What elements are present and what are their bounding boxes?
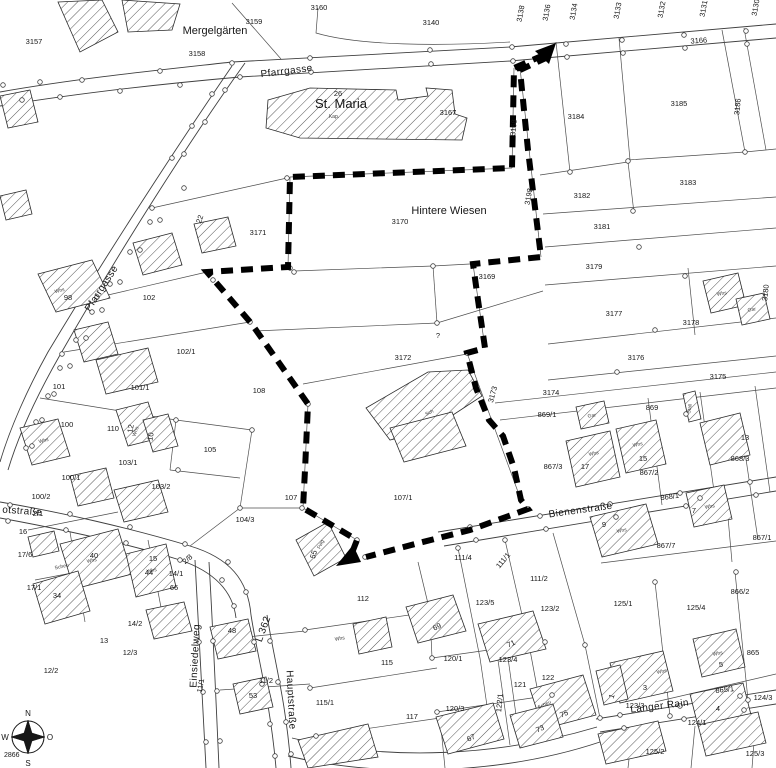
survey-point [128,250,133,255]
parcel-label: 3136 [541,4,553,22]
parcel-label: 3134 [568,3,580,21]
survey-point [744,29,749,34]
parcel-label: 3138 [515,5,527,23]
survey-point [598,716,603,721]
compass-rose: N O S W 2866 [1,709,53,768]
parcel-label: 3182 [574,191,591,200]
survey-point [743,150,748,155]
survey-point [138,248,143,253]
parcel-label: 2/1 [33,509,43,518]
parcel-label: 108 [253,386,266,395]
parcel-label: 115 [381,658,393,667]
survey-point [618,713,623,718]
building-label: Scheu [54,563,69,572]
parcel-label: 123/5 [476,598,495,607]
survey-point [250,428,255,433]
house-number: 48 [228,626,236,635]
cadastral-map: MergelgärtenHintere WiesenSt. MariaKap.P… [0,0,776,768]
survey-point [456,546,461,551]
parcel-label: 107/1 [394,493,413,502]
survey-point [637,245,642,250]
survey-point [653,580,658,585]
survey-point [203,120,208,125]
survey-point [614,515,619,520]
parcel-label: 111/2 [530,574,548,583]
survey-point [538,514,543,519]
survey-point [128,525,133,530]
chapel-label: Kap. [329,114,339,120]
survey-point [52,392,57,397]
survey-point [80,78,85,83]
house-number: 17 [581,462,589,471]
survey-point [230,61,235,66]
parcel-label: 866/2 [731,587,750,596]
survey-point [268,639,273,644]
survey-point [511,59,516,64]
parcel-label: 123/4 [499,655,518,664]
survey-point [46,394,51,399]
survey-point [620,38,625,43]
survey-point [30,444,35,449]
parcel-label: 3158 [189,49,206,58]
survey-point [1,83,6,88]
survey-point [176,468,181,473]
parcel-label: 121 [514,680,527,689]
house-number: 7 [692,506,696,515]
parcel-label: 3185 [671,99,688,108]
parcel-label: 868/3 [731,454,750,463]
parcel-label: 101/1 [131,383,150,392]
parcel-label: 124/3 [754,693,773,702]
parcel-label: 117 [406,712,418,721]
survey-point [503,538,508,543]
survey-point [682,717,687,722]
buildings [0,0,770,768]
parcel-label: 3174 [543,388,560,397]
parcel-label: 3184 [568,112,585,121]
parcel-label: 3173 [486,385,499,403]
parcel-label: 3140 [423,18,440,27]
parcel-label: 865 [747,648,760,657]
house-number: 53 [249,691,257,700]
parcel-label: 3159 [246,17,263,26]
parcel-label: 869/1 [538,410,557,419]
compass-east: O [47,733,53,742]
parcel-label: ? [436,331,440,340]
parcel-label: 123/2 [541,604,560,613]
survey-point [40,418,45,423]
survey-point [684,504,689,509]
compass-south: S [25,759,30,768]
survey-point [24,446,29,451]
parcel-label: 16 [19,527,27,536]
parcel-label: 12/3 [123,648,138,657]
sheet-number: 2866 [4,752,20,759]
parcel-label: 3172 [395,353,412,362]
parcel-label: 3186 [732,98,743,116]
parcel-label: 869 [646,403,659,412]
house-number: 15 [149,554,157,563]
survey-point [565,55,570,60]
parcel-label: 112 [357,594,369,603]
survey-point [314,734,319,739]
parcel-label: 3157 [26,37,43,46]
survey-point [289,752,294,757]
parcel-label: 867/2 [640,468,659,477]
survey-point [100,308,105,313]
survey-point [268,722,273,727]
survey-point [626,159,631,164]
survey-point [118,280,123,285]
survey-point [182,186,187,191]
survey-point [68,364,73,369]
parcel-label: 3181 [594,222,611,231]
survey-point [158,218,163,223]
survey-point [682,33,687,38]
survey-point [564,42,569,47]
survey-point [273,754,278,759]
survey-point [742,708,747,713]
parcel-label: 122 [542,673,555,682]
parcel-label: 105 [204,445,217,454]
parcel-label: 115/1 [316,698,334,707]
survey-point [748,480,753,485]
house-number: 66 [170,583,178,592]
survey-point [435,321,440,326]
parcel-label: 110 [107,424,119,433]
house-number: 15 [639,454,647,463]
survey-point [204,740,209,745]
church-label: St. Maria [315,96,368,111]
compass-west: W [1,733,9,742]
survey-point [238,506,243,511]
survey-point [68,512,73,517]
survey-point [544,527,549,532]
parcel-label: 3131 [698,0,710,18]
parcel-label: 12/2 [44,666,59,675]
survey-point [568,170,573,175]
parcel-label: 3177 [606,309,623,318]
survey-point [84,336,89,341]
survey-point [74,338,79,343]
survey-point [210,92,215,97]
parcel-label: 868/1 [660,491,680,503]
parcel-label: 13 [100,636,108,645]
survey-point [622,726,627,731]
parcel-label: 3180 [760,284,771,302]
survey-point [223,88,228,93]
parcel-label: 3167 [440,108,457,117]
parcel-label: 120/3 [446,704,465,713]
survey-point [276,680,281,685]
survey-point [158,69,163,74]
survey-point [38,80,43,85]
parcel-label: 100/1 [62,473,81,482]
survey-point [668,714,673,719]
compass-star [11,720,45,754]
parcel-label: 3166 [690,35,707,45]
house-number: 4 [716,704,720,713]
parcel-label: 125/2 [646,747,665,756]
parcel-label: 3170 [392,217,409,226]
survey-point [64,528,69,533]
survey-point [178,83,183,88]
parcel-label: 17/6 [18,550,33,559]
house-number: 13 [741,433,749,442]
survey-point [621,51,626,56]
parcel-label: 125/1 [614,599,633,608]
parcel-label: 867/7 [657,541,676,550]
survey-point [550,693,555,698]
survey-point [754,493,759,498]
house-number: 3 [643,683,647,692]
parcel-label: 120/1 [444,654,463,663]
survey-point [543,640,548,645]
parcel-label: 3130 [750,0,762,17]
survey-point [170,156,175,161]
parcel-label: 111/4 [454,553,472,562]
survey-point [428,48,433,53]
parcel-label: 100 [61,420,74,429]
survey-point [232,604,237,609]
survey-point [215,689,220,694]
place-label: Mergelgärten [183,25,248,37]
survey-point [58,95,63,100]
parcel-label: 3178 [683,318,700,327]
parcel-label: 17/1 [27,583,42,592]
survey-point [308,686,313,691]
survey-point [244,590,249,595]
house-number: 10 [145,432,155,442]
parcel-label: 3176 [628,353,645,362]
parcel-label: 101 [53,382,66,391]
cadastral-map-svg: MergelgärtenHintere WiesenSt. MariaKap.P… [0,0,776,768]
survey-point [218,739,223,744]
parcel-label: 125/4 [687,603,706,612]
parcel-label: 124/1 [688,718,707,727]
survey-point [435,710,440,715]
survey-point [734,570,739,575]
parcel-label: 3171 [250,228,267,237]
survey-point [474,538,479,543]
parcel-label: 3132 [656,1,668,19]
survey-point [182,152,187,157]
survey-point [615,370,620,375]
survey-point [745,42,750,47]
survey-point [683,274,688,279]
survey-point [211,639,216,644]
parcel-label: 103/1 [119,458,138,467]
parcel-label: 104/3 [236,515,255,524]
survey-point [510,45,515,50]
parcel-label: 3168 [508,119,519,137]
survey-point [583,643,588,648]
parcel-label: 867/3 [544,462,563,471]
survey-point [190,124,195,129]
parcel-label: 3179 [586,262,603,271]
survey-point [738,694,743,699]
survey-point [211,278,216,283]
parcel-label: 2/8 [181,552,195,566]
place-label: Hintere Wiesen [411,205,486,217]
survey-point [303,628,308,633]
survey-point [429,62,434,67]
survey-point [292,270,297,275]
parcel-label: 102 [143,293,156,302]
survey-point [118,89,123,94]
survey-point [300,506,305,511]
survey-point [20,98,25,103]
house-number: 5 [719,660,723,669]
survey-point [60,352,65,357]
parcel-label: 867/1 [753,533,772,542]
parcel-label: 3133 [612,2,624,20]
survey-point [226,560,231,565]
parcel-label: 98 [64,293,72,302]
parcel-label: 122/1 [494,693,505,712]
parcel-label: 125/3 [746,749,765,758]
parcel-label: 102/1 [177,347,196,356]
survey-point [220,578,225,583]
street-label: Einsiedelweg [188,624,202,688]
survey-point [285,176,290,181]
building-label: Whs [334,635,345,643]
survey-point [653,328,658,333]
parcel-label: 3160 [311,3,328,12]
survey-point [148,220,153,225]
house-number: 9 [602,520,606,529]
parcel-label: 103/2 [152,482,171,491]
survey-point [6,519,11,524]
survey-point [631,209,636,214]
survey-point [683,46,688,51]
survey-point [174,418,179,423]
parcel-label: 3175 [710,372,727,381]
street-label: Pfarrgasse [260,63,313,80]
house-number: 34 [53,591,61,600]
survey-point [150,206,155,211]
survey-point [124,541,129,546]
survey-point [430,656,435,661]
survey-point [34,420,39,425]
parcel-label: 3183 [680,178,697,187]
parcel-label: 14/1 [169,569,184,578]
parcel-label: 107 [285,493,298,502]
house-number: 26 [334,89,342,98]
survey-point [238,75,243,80]
parcel-label: 123/3 [626,701,645,710]
survey-point [431,264,436,269]
parcel-label: 100/2 [32,492,51,501]
survey-point [746,698,751,703]
survey-point [698,496,703,501]
parcel-label: 3169 [479,272,496,281]
parcel-label: 11/2 [259,676,273,685]
compass-north: N [25,709,31,718]
parcel-label: 14/2 [128,619,143,628]
survey-point [308,56,313,61]
survey-point [183,542,188,547]
survey-point [58,366,63,371]
